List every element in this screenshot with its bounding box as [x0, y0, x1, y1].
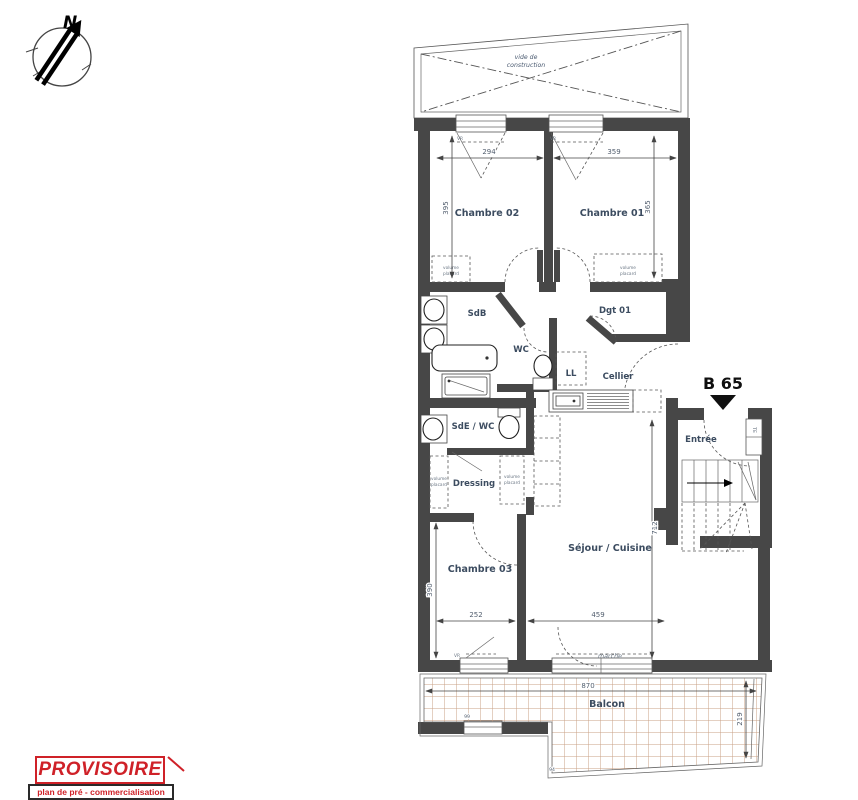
room-label-cellier: Cellier	[603, 372, 635, 382]
room-label-sde-wc: SdE / WC	[452, 422, 495, 432]
washer-label: LL	[566, 369, 577, 379]
plan-subtitle-box: plan de pré - commercialisation	[28, 784, 174, 800]
north-compass-icon: N	[26, 13, 91, 87]
dim-365: 365	[644, 200, 652, 213]
dim-94: 94	[549, 767, 555, 773]
dim-459: 459	[591, 611, 604, 619]
volume-placard-label: volume	[443, 265, 459, 271]
dim-870: 870	[581, 682, 594, 690]
vr-label: VR	[454, 653, 460, 659]
electrical-panel: TE	[746, 419, 762, 455]
provisoire-stamp-text: PROVISOIRE	[38, 759, 161, 781]
dim-99: 99	[464, 714, 470, 720]
dim-395: 395	[442, 201, 450, 214]
dim-359: 359	[607, 148, 620, 156]
room-label-wc: WC	[513, 345, 529, 355]
entry-arrow-icon	[710, 395, 736, 410]
dim-294: 294	[482, 148, 496, 156]
volume-placard-label: volume	[504, 474, 520, 480]
dim-390: 390	[426, 583, 434, 596]
room-label-chambre-03: Chambre 03	[448, 564, 513, 575]
room-label-balcon: Balcon	[589, 699, 625, 710]
volume-placard-label: volume	[620, 265, 636, 271]
room-label-chambre-02: Chambre 02	[455, 208, 520, 219]
floor-plan-svg: N vide de construction	[0, 0, 858, 800]
unit-marker: B 65	[703, 374, 743, 410]
unit-label: B 65	[703, 374, 743, 393]
stamp-mark	[168, 757, 184, 771]
provisoire-stamp: PROVISOIRE	[35, 756, 165, 784]
dim-219: 219	[736, 712, 744, 725]
plan-subtitle-text: plan de pré - commercialisation	[37, 787, 165, 797]
te-label: TE	[751, 426, 757, 433]
volume-placard-label: placard	[620, 271, 636, 277]
room-label-sdb: SdB	[468, 309, 487, 319]
vr-label: VR	[550, 136, 556, 142]
room-label-chambre-01: Chambre 01	[580, 208, 645, 219]
volume-placard-label: placard	[504, 480, 520, 486]
volume-placard-label: placard	[443, 271, 459, 277]
room-label-dgt: Dgt 01	[599, 306, 631, 316]
void-construction-area: vide de construction	[414, 24, 688, 118]
volume-placard-label: volume	[431, 476, 447, 482]
north-label: N	[63, 13, 77, 33]
room-label-sejour: Séjour / Cuisine	[568, 543, 652, 554]
floor-plan-page: N vide de construction	[0, 0, 858, 800]
dim-712: 712	[651, 521, 659, 534]
void-label-line1: vide de	[515, 54, 538, 61]
vr-label: VR	[457, 136, 463, 142]
dim-252: 252	[469, 611, 482, 619]
volume-placard-label: placard	[431, 482, 447, 488]
void-label-line2: construction	[507, 61, 546, 69]
marche-label: marche	[598, 653, 622, 660]
room-label-dressing: Dressing	[453, 479, 495, 489]
room-label-entree: Entrée	[685, 434, 717, 445]
